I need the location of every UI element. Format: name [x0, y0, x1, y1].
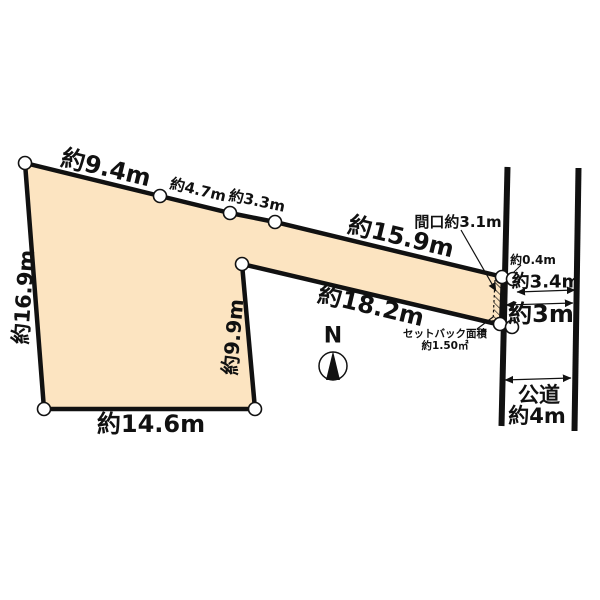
boundary-point [249, 403, 262, 416]
label-south-edge: 約14.6m [97, 410, 205, 438]
site-plan-diagram: N 約9.4m 約4.7m 約3.3m 約15.9m 約18.2m 約16.9m… [0, 0, 600, 600]
boundary-point [38, 403, 51, 416]
road-edge-right [575, 168, 579, 431]
label-frontage: 間口約3.1m [414, 213, 501, 231]
boundary-point [236, 258, 249, 271]
site-plan-svg: N 約9.4m 約4.7m 約3.3m 約15.9m 約18.2m 約16.9m… [0, 0, 600, 600]
label-setback-area-2: 約1.50㎡ [422, 339, 469, 352]
boundary-point [224, 207, 237, 220]
compass: N [319, 324, 347, 381]
boundary-point [19, 157, 32, 170]
label-road-width: 約4m [508, 404, 566, 428]
compass-needle-icon [326, 351, 340, 380]
label-offset: 約0.4m [510, 252, 556, 267]
boundary-point [269, 216, 282, 229]
boundary-point [494, 318, 507, 331]
label-west-edge: 約16.9m [9, 249, 40, 345]
label-across-road: 約3.4m [512, 271, 581, 293]
compass-north-label: N [324, 324, 342, 349]
road-width-arrow [505, 378, 571, 380]
label-setback-area-1: セットバック面積 [403, 327, 487, 340]
boundary-point [154, 190, 167, 203]
label-road-gap: 約3m [508, 300, 574, 328]
